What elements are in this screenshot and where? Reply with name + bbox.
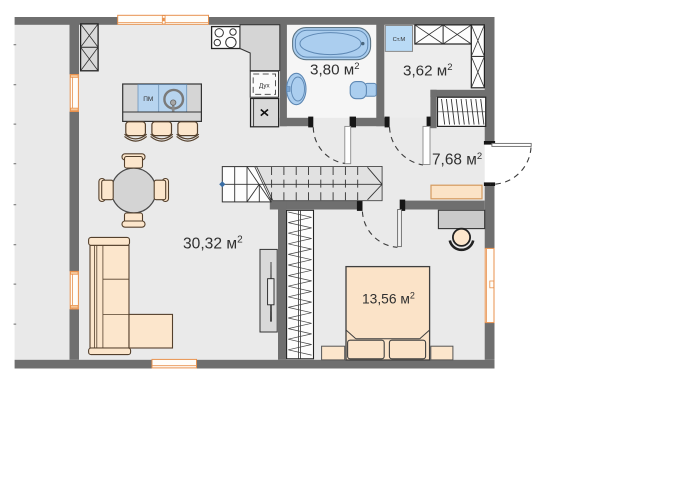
svg-text:Ст.М: Ст.М bbox=[393, 37, 406, 43]
svg-text:30,32 м2: 30,32 м2 bbox=[183, 235, 243, 253]
svg-text:7,68 м2: 7,68 м2 bbox=[432, 151, 482, 169]
svg-text:Дух: Дух bbox=[259, 83, 270, 90]
svg-text:3,62 м2: 3,62 м2 bbox=[403, 62, 453, 80]
svg-text:3,80 м2: 3,80 м2 bbox=[310, 61, 360, 79]
svg-text:13,56 м2: 13,56 м2 bbox=[362, 291, 415, 307]
svg-text:ПМ: ПМ bbox=[143, 96, 153, 103]
